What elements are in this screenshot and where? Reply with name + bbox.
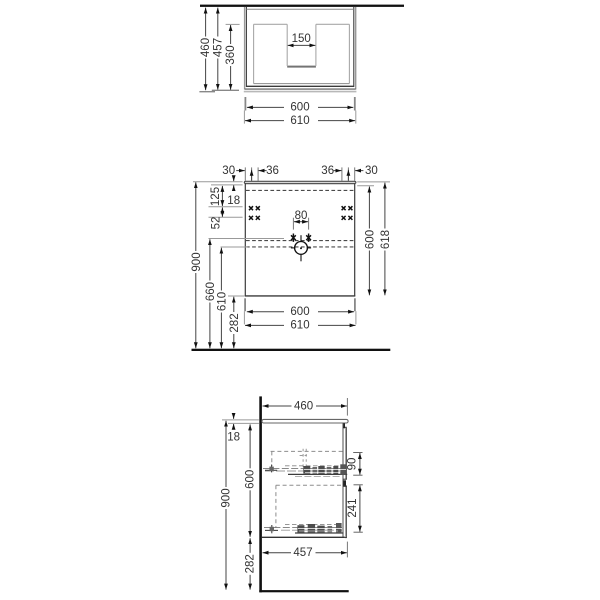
svg-text:36: 36	[266, 165, 279, 177]
svg-text:125: 125	[210, 187, 222, 206]
svg-text:36: 36	[321, 165, 334, 177]
svg-text:52: 52	[211, 217, 223, 230]
svg-text:900: 900	[221, 488, 233, 507]
svg-text:900: 900	[191, 252, 203, 271]
svg-text:460: 460	[200, 38, 212, 57]
svg-text:660: 660	[205, 282, 217, 301]
svg-text:600: 600	[364, 230, 376, 249]
svg-text:360: 360	[225, 45, 237, 64]
svg-text:18: 18	[227, 431, 240, 443]
svg-text:90: 90	[347, 458, 359, 471]
svg-text:80: 80	[295, 210, 308, 222]
svg-text:610: 610	[290, 115, 309, 127]
svg-text:241: 241	[347, 498, 359, 517]
svg-text:282: 282	[245, 554, 257, 573]
svg-text:600: 600	[245, 470, 257, 489]
svg-text:282: 282	[229, 313, 241, 332]
svg-text:30: 30	[365, 165, 378, 177]
svg-text:18: 18	[227, 195, 240, 207]
svg-text:618: 618	[380, 230, 392, 249]
svg-text:457: 457	[212, 38, 224, 57]
svg-text:600: 600	[290, 102, 309, 114]
svg-text:610: 610	[290, 320, 309, 332]
svg-text:150: 150	[292, 33, 311, 45]
svg-text:600: 600	[290, 306, 309, 318]
svg-text:610: 610	[216, 292, 228, 311]
svg-text:460: 460	[294, 400, 313, 412]
svg-text:30: 30	[222, 165, 235, 177]
svg-text:457: 457	[293, 547, 312, 559]
